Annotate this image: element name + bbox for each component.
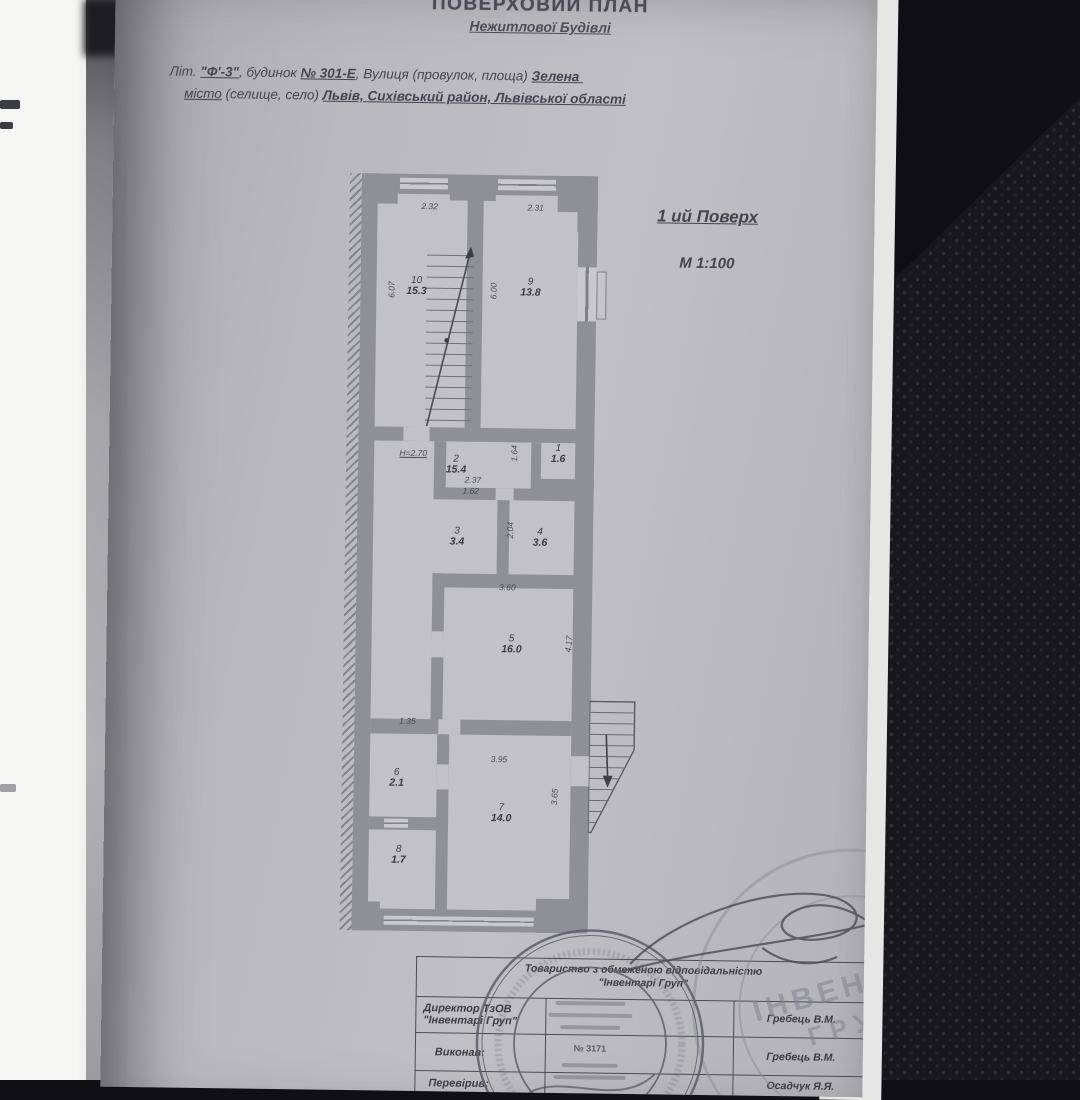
room-area: 2.1 [372, 777, 422, 789]
room-label-4: 4 3.6 [515, 526, 565, 549]
signature [612, 876, 878, 990]
room-label-7: 7 14.0 [476, 802, 526, 825]
dim-3-95: 3.95 [477, 754, 521, 765]
door-gap [437, 764, 449, 789]
dim-2-37: 2.37 [451, 474, 495, 485]
addr1-mid1: , будинок [239, 64, 301, 80]
addr2-mid: (селище, село) [222, 86, 323, 102]
document-page: ПОВЕРХОВИЙ ПЛАН Нежитлової Будівлі Літ. … [100, 0, 877, 1097]
pen-mark [0, 100, 20, 109]
room-area: 15.3 [391, 286, 441, 298]
room-label-6: 6 2.1 [372, 766, 422, 789]
pen-mark [0, 122, 13, 129]
dim-3-60: 3.60 [485, 582, 529, 593]
dim-6-00: 6.00 [488, 271, 499, 311]
window-right [577, 267, 597, 321]
dim-1-35: 1.35 [385, 716, 429, 727]
door-gap [496, 488, 514, 500]
document-subtitle: Нежитлової Будівлі [345, 16, 735, 37]
room-label-10: 10 15.3 [391, 275, 441, 298]
floorplan: 10 15.3 9 13.8 2 15.4 1 1.6 3 3.4 4 3.6 … [339, 168, 670, 942]
addr1-pre: Літ. [169, 63, 200, 78]
room-label-5: 5 16.0 [486, 633, 536, 656]
addr1-letter: "Ф'-3" [200, 64, 239, 80]
dim-1-62: 1.62 [449, 485, 493, 496]
address-line-1: Літ. "Ф'-3", будинок № 301-Е, Вулиця (пр… [169, 63, 809, 87]
room-label-3: 3 3.4 [432, 525, 482, 548]
door-gap [438, 719, 460, 734]
window-right-ledge [596, 271, 607, 319]
window-top-2 [498, 179, 556, 191]
room-area: 3.4 [432, 536, 482, 548]
dim-2-32: 2.32 [408, 201, 452, 212]
wall-corner-bl [352, 901, 380, 930]
room-area: 1.7 [373, 854, 423, 866]
room-label-1: 1 1.6 [536, 443, 580, 466]
door-gap [431, 631, 443, 657]
addr2-city: Львів, Сихівський район, Львівської обла… [323, 88, 626, 107]
room-area: 13.8 [505, 287, 555, 299]
addr1-house-number: № 301-Е [300, 65, 355, 81]
window-top-1 [400, 178, 448, 190]
seal-number: № 3171 [574, 1043, 607, 1053]
wall-room6-8-divider [369, 816, 448, 830]
wall-corner-tr-step [577, 176, 598, 232]
door-gap-exterior [571, 756, 590, 786]
staircase-external [588, 699, 653, 835]
address-line-2: місто (селище, село) Львів, Сихівський р… [184, 86, 824, 110]
room-area: 16.0 [486, 644, 536, 656]
dim-1-64: 1.64 [509, 433, 520, 473]
room-label-8: 8 1.7 [373, 843, 423, 866]
room-area: 1.6 [536, 454, 580, 466]
dim-height-note: Н=2.70 [386, 448, 440, 459]
pen-mark [0, 784, 16, 792]
wall-corner-tl [362, 173, 398, 203]
room-area: 14.0 [476, 813, 526, 825]
dim-2-04: 2.04 [505, 510, 516, 550]
window-room8 [384, 819, 408, 828]
staircase-internal [425, 244, 475, 430]
room-label-9: 9 13.8 [505, 276, 555, 299]
addr1-mid2: , Вулиця (провулок, площа) [356, 66, 532, 83]
addr1-street: Зелена [531, 69, 579, 85]
addr2-label: місто [184, 86, 222, 102]
dim-2-31: 2.31 [514, 202, 558, 213]
dim-6-07: 6.07 [386, 270, 397, 310]
room-area: 3.6 [515, 537, 565, 549]
